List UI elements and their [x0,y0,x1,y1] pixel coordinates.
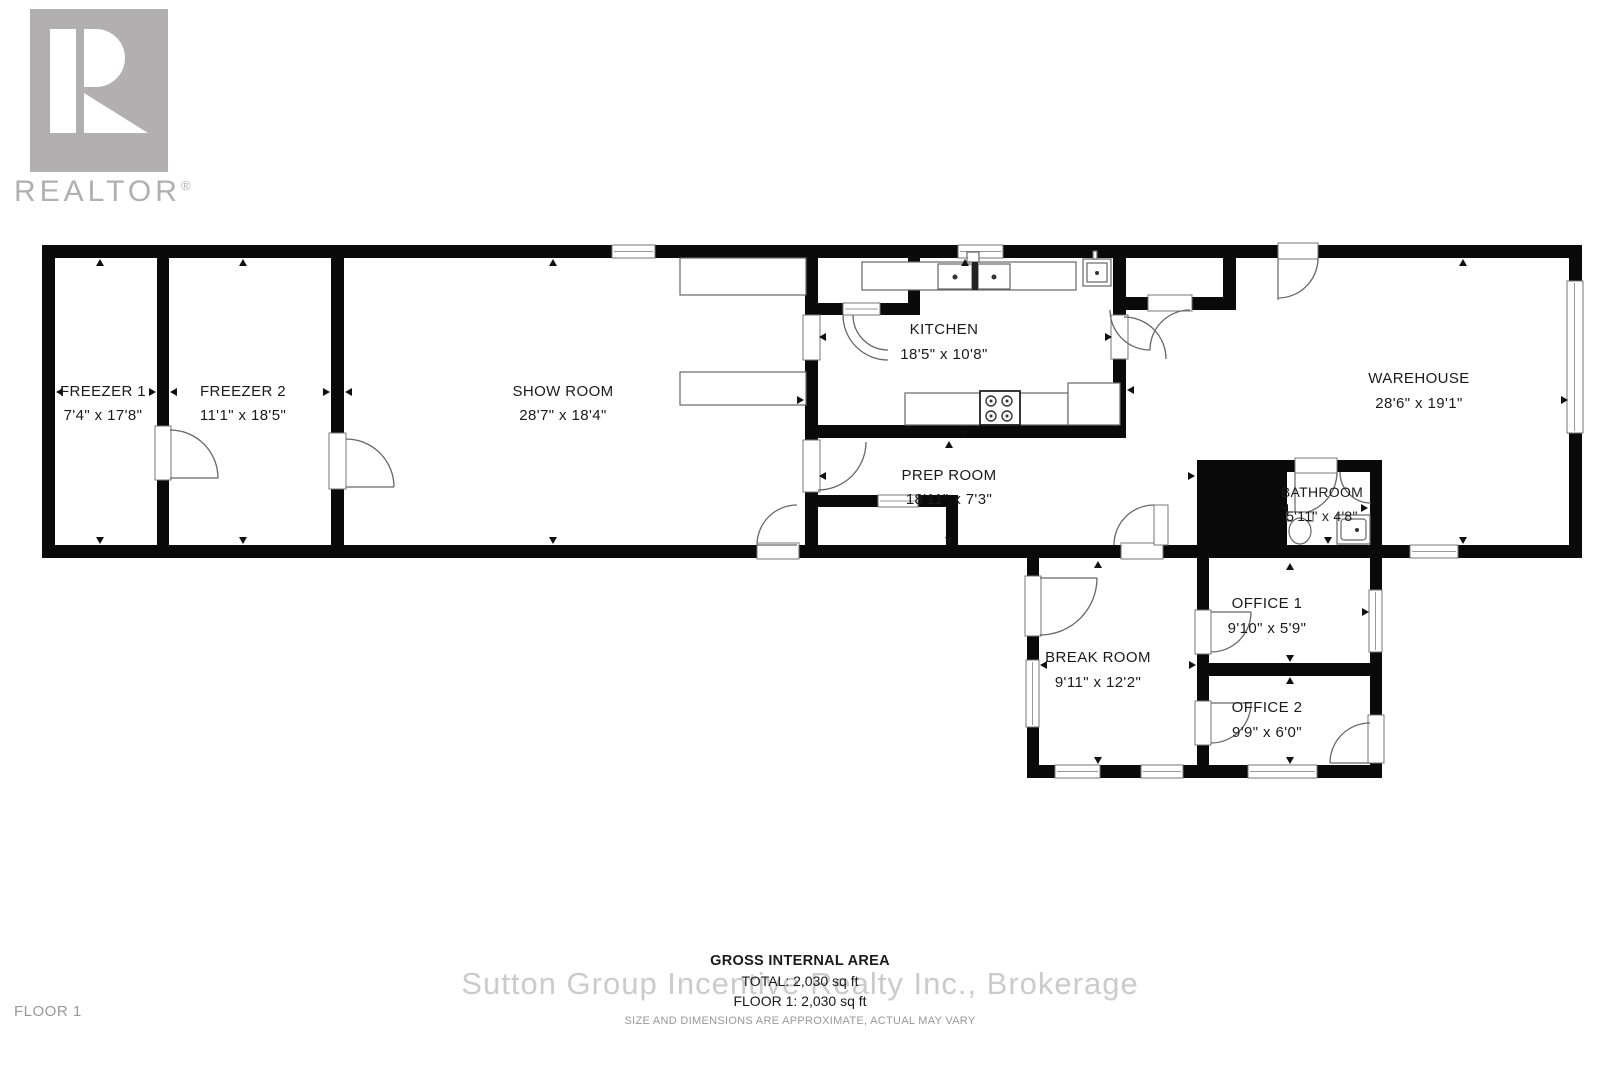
room-dims-show-room: 28'7" x 18'4" [519,407,606,424]
room-dims-kitchen: 18'5" x 10'8" [900,346,987,363]
gross-internal-area-title: GROSS INTERNAL AREA [0,953,1600,969]
room-label-freezer-1: FREEZER 1 [60,383,146,400]
kitchen-counter [1068,383,1120,425]
room-dims-office-2: 9'9" x 6'0" [1232,724,1302,741]
room-dims-freezer-2: 11'1" x 18'5" [200,407,286,424]
room-dims-prep-room: 18'11" x 7'3" [906,491,992,508]
total-area: TOTAL: 2,030 sq ft [0,973,1600,989]
showroom-counter [680,258,806,295]
room-label-kitchen: KITCHEN [910,321,979,338]
faucet [967,252,979,262]
showroom-counter [680,372,806,405]
room-label-break-room: BREAK ROOM [1045,649,1151,666]
room-label-office-2: OFFICE 2 [1232,699,1303,716]
floor-plan-drawing: FREEZER 1 7'4" x 17'8" FREEZER 2 11'1" x… [0,0,1600,1067]
room-label-prep-room: PREP ROOM [901,467,996,484]
disclaimer: SIZE AND DIMENSIONS ARE APPROXIMATE, ACT… [0,1015,1600,1027]
stove [980,391,1020,425]
windows [612,245,1583,778]
door-arc [170,258,1370,763]
floor-area: FLOOR 1: 2,030 sq ft [0,993,1600,1009]
room-label-freezer-2: FREEZER 2 [200,383,286,400]
floor-label: FLOOR 1 [14,1003,82,1020]
room-dims-warehouse: 28'6" x 19'1" [1375,395,1462,412]
room-label-show-room: SHOW ROOM [512,383,613,400]
footer: GROSS INTERNAL AREA TOTAL: 2,030 sq ft F… [0,953,1600,1027]
room-label-office-1: OFFICE 1 [1232,595,1303,612]
room-dims-break-room: 9'11" x 12'2" [1055,674,1141,691]
room-label-warehouse: WAREHOUSE [1368,370,1469,387]
floorplan-page: REALTOR® Sutton Group Incentive Realty I… [0,0,1600,1067]
room-dims-bathroom: 5'11" x 4'8" [1286,508,1358,524]
door-swings [170,258,1370,763]
room-dims-freezer-1: 7'4" x 17'8" [64,407,143,424]
door-leaf [170,258,1370,763]
room-dims-office-1: 9'10" x 5'9" [1228,620,1307,637]
room-label-bathroom: BATHROOM [1281,484,1363,500]
solid-core-block [1197,460,1275,558]
